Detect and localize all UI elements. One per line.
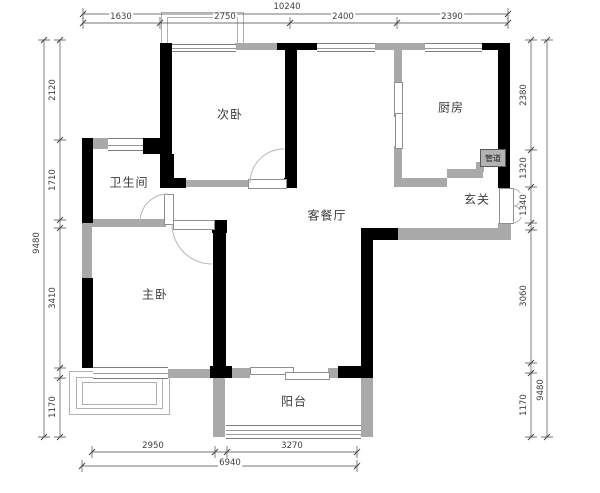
wall-secondary-bedroom-right	[285, 48, 297, 187]
dim-top-seg-3: 2400	[331, 13, 355, 22]
duct-label: 管道	[485, 153, 501, 164]
wall-master-bedroom-bottom-gray	[167, 369, 213, 378]
wall-kitchen-bottom	[394, 178, 447, 187]
window-kitchen-top	[425, 43, 482, 52]
dim-top-seg-4: 2390	[440, 13, 464, 22]
wall-right-below-entry-door	[498, 223, 511, 240]
room-label-bathroom: 卫生间	[109, 174, 148, 191]
wall-bathroom-stub	[160, 178, 186, 188]
room-label-balcony: 阳台	[281, 393, 307, 410]
dim-left-seg-4: 1170	[49, 395, 58, 419]
dim-right-seg-4: 3060	[520, 284, 529, 308]
dim-right-seg-1: 2380	[520, 83, 529, 107]
wall-secondary-bedroom-bottom-gray	[185, 180, 248, 187]
wall-entry-bottom-gray	[398, 228, 508, 240]
room-label-living-dining: 客餐厅	[307, 207, 346, 224]
dim-left-seg-2: 1710	[49, 168, 58, 192]
dim-left-seg-1: 2120	[49, 78, 58, 102]
wall-left-gray-mid	[82, 223, 92, 278]
dim-bottom-seg-1: 2950	[141, 442, 165, 451]
wall-living-bottom-right	[338, 366, 363, 378]
room-label-master-bedroom: 主卧	[142, 286, 168, 303]
wall-kitchen-left-lower	[394, 146, 402, 180]
wall-bathroom-bottom	[82, 219, 166, 227]
window-master-bedroom-bay	[93, 367, 168, 379]
sliding-door-kitchen-panel-1	[394, 82, 403, 117]
window-secondary-bedroom-bay	[172, 44, 236, 52]
wall-master-bedroom-right	[213, 233, 226, 378]
dim-top-total: 10240	[272, 3, 301, 12]
door-leaf-secondary-bedroom	[248, 179, 287, 189]
dim-right-seg-2: 1320	[520, 156, 529, 180]
dim-right-seg-3: 1340	[520, 193, 529, 217]
dim-top-seg-2: 2750	[213, 13, 237, 22]
sliding-door-balcony-panel-2	[285, 372, 330, 380]
door-leaf-master-bedroom	[173, 220, 215, 230]
dim-bottom-total: 6940	[218, 459, 242, 468]
dim-right-total: 9480	[537, 378, 546, 402]
dim-left-total: 9480	[33, 231, 42, 255]
sliding-door-kitchen-panel-2	[395, 113, 403, 149]
window-living-top	[317, 43, 375, 52]
duct-box: 管道	[480, 149, 506, 167]
wall-top-gray-1	[235, 43, 277, 50]
dim-bottom-seg-2: 3270	[280, 442, 304, 451]
wall-bathroom-top-gray	[92, 138, 108, 149]
room-label-entryway: 玄关	[464, 191, 490, 208]
room-label-secondary-bedroom: 次卧	[217, 106, 243, 123]
wall-balcony-right	[361, 378, 373, 437]
wall-balcony-top-gray-left	[232, 368, 250, 378]
window-balcony	[226, 425, 361, 439]
dim-left-seg-3: 3410	[49, 286, 58, 310]
floor-plan: 管道	[0, 0, 600, 493]
wall-top-black-1	[277, 43, 317, 50]
room-label-kitchen: 厨房	[438, 99, 464, 116]
wall-kitchen-left-upper	[394, 48, 402, 82]
wall-entry-bottom-black	[361, 228, 398, 240]
wall-living-bottom-left-corner	[210, 366, 232, 378]
bay-window-master-bedroom-inner	[82, 382, 157, 405]
dim-right-seg-5: 1170	[520, 393, 529, 417]
wall-bathroom-left	[82, 138, 93, 223]
dim-top-seg-1: 1630	[109, 13, 133, 22]
window-bathroom	[108, 138, 143, 151]
wall-left-outer-lower	[82, 278, 93, 368]
wall-bathroom-top-corner	[143, 138, 172, 154]
door-frame-entry	[499, 188, 514, 224]
wall-balcony-left	[213, 378, 225, 437]
wall-living-right	[361, 228, 373, 378]
